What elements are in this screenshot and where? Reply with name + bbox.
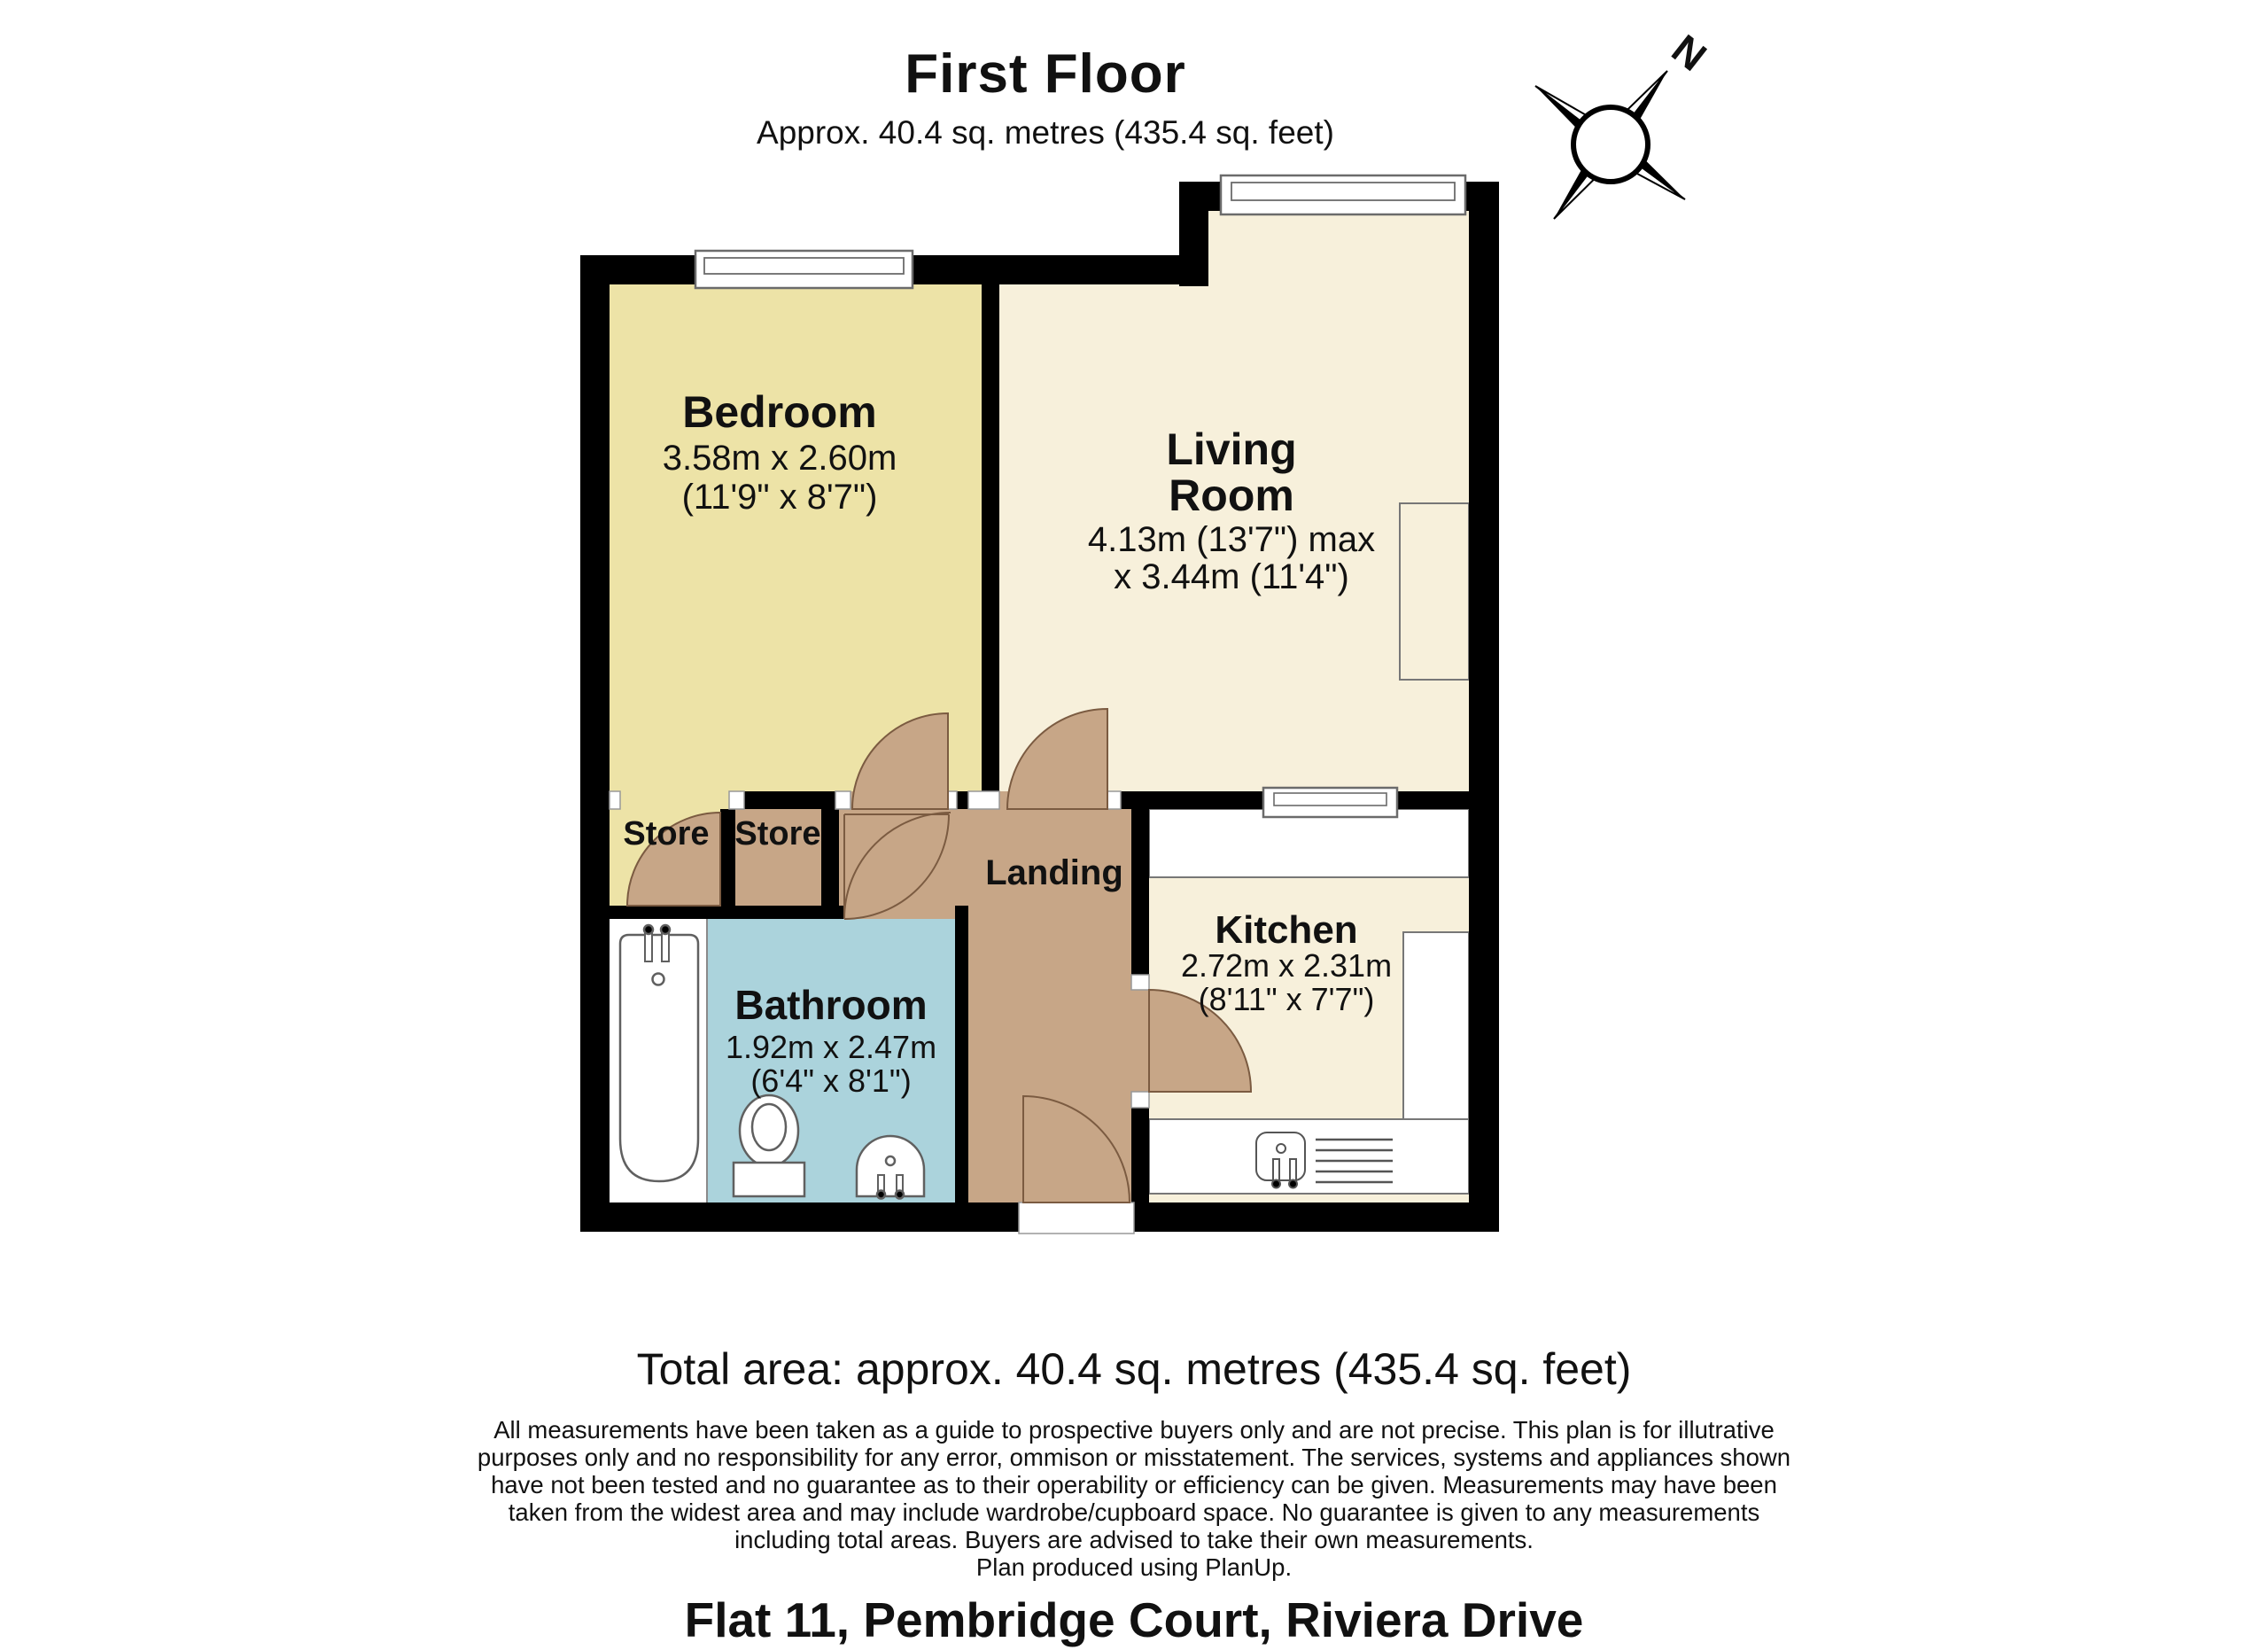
- wall-bathroom-top: [610, 906, 844, 919]
- counter-bottom: [1149, 1119, 1469, 1194]
- bathroom-label: Bathroom: [734, 982, 927, 1028]
- wall-bathroom-right: [955, 906, 968, 1202]
- wall-kitchen-left-lower: [1131, 1108, 1149, 1202]
- wall-bottom-right: [1134, 1202, 1499, 1232]
- kitchen-door-opening: [1131, 990, 1149, 1092]
- floor-plan-drawing: N Bedroom 3.58m x 2.60m (11'9" x 8'7") L…: [0, 0, 2268, 1650]
- living-room-dim-2: x 3.44m (11'4"): [1114, 557, 1349, 596]
- bedroom-label: Bedroom: [682, 387, 876, 437]
- floorplan-page: First Floor Approx. 40.4 sq. metres (435…: [0, 0, 2268, 1650]
- counter-top: [1149, 809, 1469, 877]
- toilet: [734, 1095, 804, 1196]
- compass-icon: N: [1535, 26, 1715, 219]
- wall-left: [580, 255, 610, 1232]
- store-right-label: Store: [734, 815, 820, 852]
- kitchen-window: [1263, 788, 1397, 817]
- total-area-text: Total area: approx. 40.4 sq. metres (435…: [0, 1343, 2268, 1395]
- living-room-floor-notch: [1208, 211, 1469, 286]
- wall-store-right-top: [744, 791, 835, 809]
- bathroom-dim-metric: 1.92m x 2.47m: [726, 1029, 936, 1065]
- bedroom-dim-imperial: (11'9" x 8'7"): [682, 478, 878, 517]
- landing-label: Landing: [985, 853, 1123, 892]
- living-room-window: [1221, 175, 1465, 214]
- wall-store-divider: [720, 809, 735, 906]
- disclaimer-line: including total areas. Buyers are advise…: [266, 1526, 2002, 1553]
- front-door-threshold: [1019, 1202, 1134, 1234]
- wall-store-right-side: [821, 809, 839, 906]
- bathtub: [620, 925, 698, 1181]
- wall-door-stub: [957, 791, 968, 809]
- disclaimer-line: have not been tested and no guarantee as…: [266, 1471, 2002, 1498]
- disclaimer-line: taken from the widest area and may inclu…: [266, 1498, 2002, 1526]
- disclaimer-line: Plan produced using PlanUp.: [266, 1553, 2002, 1581]
- basin: [857, 1136, 924, 1199]
- disclaimer-line: All measurements have been taken as a gu…: [266, 1416, 2002, 1444]
- kitchen-dim-metric: 2.72m x 2.31m: [1181, 947, 1392, 984]
- bathroom-dim-imperial: (6'4" x 8'1"): [750, 1062, 911, 1099]
- living-room-label-1: Living: [1166, 424, 1296, 474]
- bedroom-dim-metric: 3.58m x 2.60m: [663, 439, 897, 478]
- living-room-dim-1: 4.13m (13'7") max: [1088, 520, 1375, 559]
- bedroom-window: [695, 251, 913, 288]
- disclaimer: All measurements have been taken as a gu…: [266, 1416, 2002, 1581]
- property-address: Flat 11, Pembridge Court, Riviera Drive: [0, 1592, 2268, 1648]
- wall-bedroom-living-divider: [982, 284, 999, 791]
- wall-living-step: [1179, 182, 1208, 286]
- living-room-label-2: Room: [1169, 471, 1294, 520]
- sink-drain: [1277, 1144, 1285, 1153]
- wall-kitchen-left-upper: [1131, 809, 1149, 975]
- living-room-recess: [1400, 503, 1469, 680]
- disclaimer-line: purposes only and no responsibility for …: [266, 1444, 2002, 1471]
- sink: [1256, 1132, 1305, 1180]
- kitchen-dim-imperial: (8'11" x 7'7"): [1199, 981, 1375, 1017]
- compass-north-label: N: [1664, 26, 1715, 80]
- wall-bottom-left: [580, 1202, 1019, 1232]
- compass-circle: [1573, 107, 1648, 182]
- store-left-label: Store: [623, 815, 709, 852]
- kitchen-label: Kitchen: [1215, 908, 1357, 952]
- store-left-opening: [620, 791, 729, 809]
- wall-right: [1469, 182, 1499, 1232]
